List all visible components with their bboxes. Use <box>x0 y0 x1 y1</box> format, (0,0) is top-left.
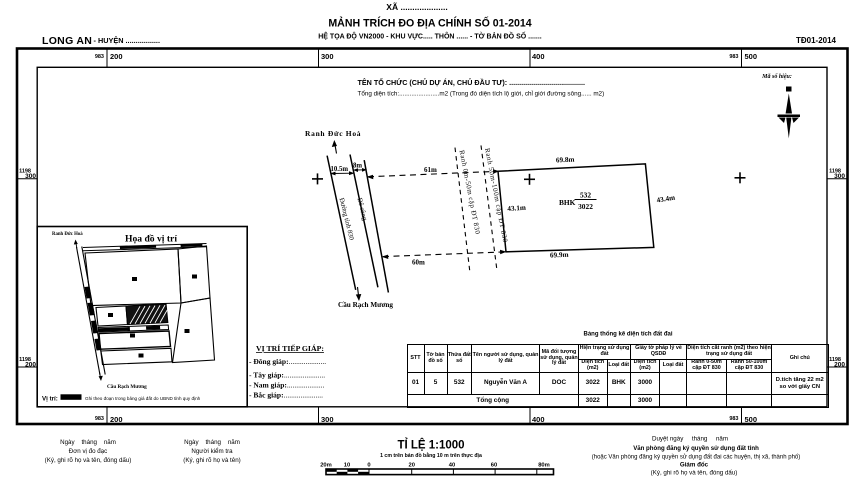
svg-text:TỈ LỆ 1:1000: TỈ LỆ 1:1000 <box>397 439 464 452</box>
svg-text:300: 300 <box>834 173 845 180</box>
svg-text:43.1m: 43.1m <box>507 204 526 213</box>
svg-text:- Bắc giáp:...................: - Bắc giáp:..................... <box>249 391 323 400</box>
svg-text:400: 400 <box>532 415 545 424</box>
svg-text:40: 40 <box>449 463 455 469</box>
svg-text:VỊ TRÍ TIẾP GIÁP:: VỊ TRÍ TIẾP GIÁP: <box>256 343 324 353</box>
svg-text:Ranh Đức Hoà: Ranh Đức Hoà <box>52 232 83 237</box>
svg-text:300: 300 <box>25 173 36 180</box>
svg-text:MẢNH TRÍCH ĐO ĐỊA CHÍNH SỐ 01-: MẢNH TRÍCH ĐO ĐỊA CHÍNH SỐ 01-2014 <box>328 16 531 30</box>
svg-text:80m: 80m <box>538 463 550 469</box>
svg-text:300: 300 <box>321 415 334 424</box>
svg-text:500: 500 <box>745 415 758 424</box>
svg-text:20: 20 <box>408 463 414 469</box>
svg-text:Họa đồ vị trí: Họa đồ vị trí <box>125 234 177 245</box>
svg-text:(Ký, ghi rõ họ và tên): (Ký, ghi rõ họ và tên) <box>183 457 240 464</box>
svg-text:200: 200 <box>834 362 845 369</box>
svg-text:- Nam giáp:...................: - Nam giáp:.................... <box>249 381 325 390</box>
svg-text:Ranh 50m-100m cặp ĐT 830: Ranh 50m-100m cặp ĐT 830 <box>483 147 509 243</box>
svg-text:69.8m: 69.8m <box>556 156 575 165</box>
svg-text:Ranh Đức Hoà: Ranh Đức Hoà <box>305 129 361 138</box>
svg-text:(Ký, ghi rõ họ và tên, đóng dấ: (Ký, ghi rõ họ và tên, đóng dấu) <box>45 457 132 464</box>
svg-text:Cầu Rạch Mương: Cầu Rạch Mương <box>107 383 147 390</box>
svg-text:60m: 60m <box>412 259 425 267</box>
svg-text:200: 200 <box>110 415 123 424</box>
svg-text:532: 532 <box>580 191 591 200</box>
svg-text:Cầu Rạch Mương: Cầu Rạch Mương <box>338 300 393 309</box>
svg-text:400: 400 <box>532 52 545 61</box>
svg-text:200: 200 <box>110 52 123 61</box>
svg-text:Người kiểm tra: Người kiểm tra <box>191 448 233 455</box>
svg-text:43.4m: 43.4m <box>656 194 676 205</box>
svg-text:983: 983 <box>729 416 738 422</box>
svg-text:Mã số hiệu:: Mã số hiệu: <box>761 73 792 80</box>
svg-text:200: 200 <box>25 362 36 369</box>
svg-text:61m: 61m <box>424 166 437 174</box>
svg-text:Văn phòng đăng ký quyền sử dụn: Văn phòng đăng ký quyền sử dụng đất tỉnh <box>633 445 759 452</box>
svg-text:Bảng thống kê diện tích đất đa: Bảng thống kê diện tích đất đai <box>583 331 672 338</box>
svg-text:983: 983 <box>95 54 104 60</box>
svg-text:Duyệt ngày tháng năm: Duyệt ngày tháng năm <box>652 436 728 443</box>
svg-text:XÃ ....................: XÃ .................... <box>386 2 447 12</box>
svg-text:3022: 3022 <box>578 202 593 211</box>
svg-text:- Đông giáp:..................: - Đông giáp:.................... <box>249 357 326 366</box>
svg-text:Giám đốc: Giám đốc <box>680 462 709 469</box>
svg-text:0: 0 <box>367 463 370 469</box>
svg-text:Ngày tháng năm: Ngày tháng năm <box>60 439 116 446</box>
svg-text:BHK: BHK <box>559 198 576 207</box>
svg-text:Đê công: Đê công <box>356 197 368 221</box>
svg-text:Ghi theo đoạn trong bảng giá đ: Ghi theo đoạn trong bảng giá đất do UBND… <box>85 395 201 401</box>
svg-text:300: 300 <box>321 52 334 61</box>
svg-text:LONG AN: LONG AN <box>42 35 92 47</box>
svg-text:Đơn vị đo đạc: Đơn vị đo đạc <box>69 448 107 455</box>
svg-text:Vị trí:: Vị trí: <box>42 396 58 403</box>
svg-text:Ngày tháng năm: Ngày tháng năm <box>184 439 240 446</box>
svg-text:(hoặc Văn phòng đăng ký quyền: (hoặc Văn phòng đăng ký quyền sử dụng đấ… <box>592 454 801 461</box>
svg-text:- HUYỆN .................: - HUYỆN ................. <box>94 36 161 45</box>
svg-text:983: 983 <box>95 416 104 422</box>
svg-text:TĐ01-2014: TĐ01-2014 <box>796 36 837 45</box>
svg-text:20m: 20m <box>320 463 332 469</box>
svg-text:HỆ TỌA ĐỘ VN2000 - KHU VỰC....: HỆ TỌA ĐỘ VN2000 - KHU VỰC..... THÔN ...… <box>318 31 542 41</box>
svg-text:Tổng diện tích:...............: Tổng diện tích:.......................m2… <box>358 90 605 98</box>
svg-text:69.9m: 69.9m <box>550 251 569 260</box>
svg-text:500: 500 <box>745 52 758 61</box>
svg-text:TÊN TỔ CHỨC (CHỦ DỰ ÁN, CHỦ ĐẦ: TÊN TỔ CHỨC (CHỦ DỰ ÁN, CHỦ ĐẦU TƯ): ...… <box>358 77 586 87</box>
svg-text:60: 60 <box>491 463 497 469</box>
svg-text:10.5m: 10.5m <box>331 166 349 173</box>
svg-text:1 cm trên bản đồ bằng 10 m trê: 1 cm trên bản đồ bằng 10 m trên thực địa <box>380 452 482 459</box>
svg-text:983: 983 <box>729 54 738 60</box>
svg-text:Ranh 0m-50m cặp ĐT 830: Ranh 0m-50m cặp ĐT 830 <box>458 149 482 235</box>
svg-text:- Tây giáp:...................: - Tây giáp:...................... <box>249 371 325 380</box>
svg-text:10: 10 <box>344 463 350 469</box>
svg-text:(Ký, ghi rõ họ và tên, đóng dấ: (Ký, ghi rõ họ và tên, đóng dấu) <box>651 470 738 477</box>
